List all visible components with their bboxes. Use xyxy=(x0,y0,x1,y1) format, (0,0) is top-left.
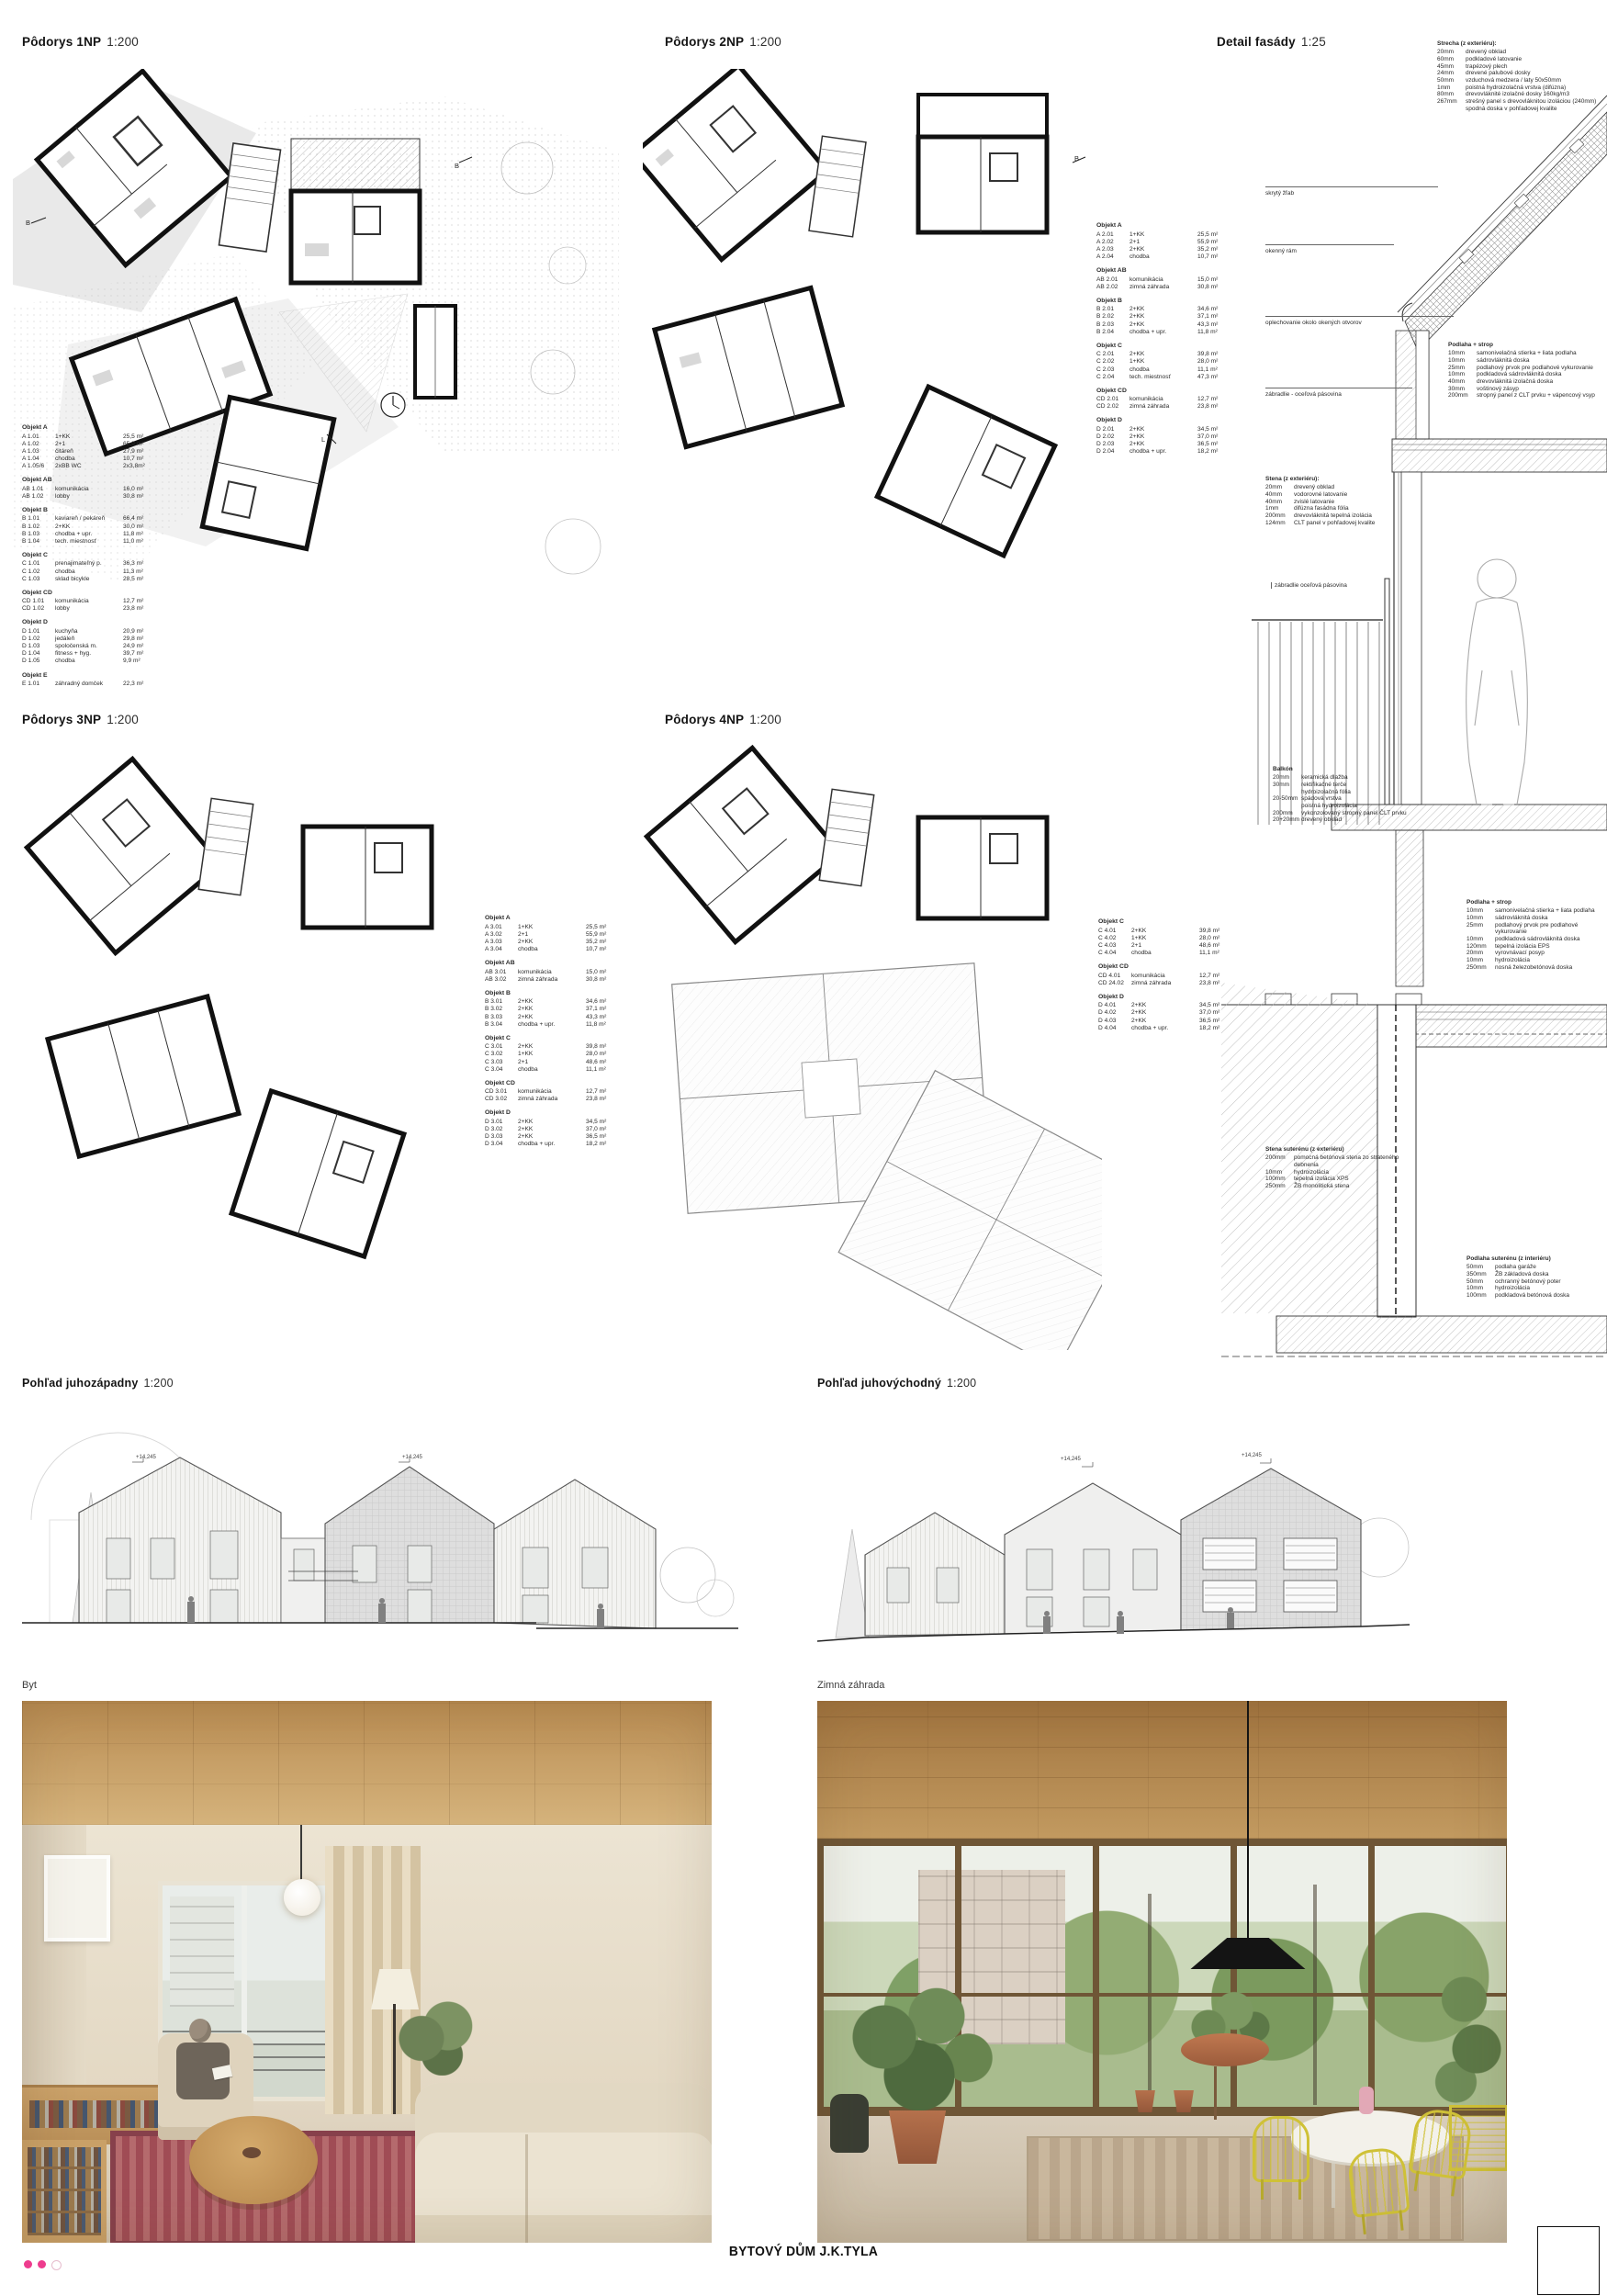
room-name: spoločenská m. xyxy=(55,643,123,650)
legend-row: D 3.012+KK34,5 m² xyxy=(485,1119,636,1126)
room-area: 29,8 m² xyxy=(123,636,143,643)
layer-description: podkladové latovanie xyxy=(1466,56,1604,63)
elev-sw-level-2: +14,245 xyxy=(402,1455,422,1460)
layer-row: 50mmochranný betónový poter xyxy=(1467,1278,1606,1286)
room-code: B 2.02 xyxy=(1096,313,1129,321)
room-name: komunikácia xyxy=(1129,396,1197,403)
plan4-stair-core xyxy=(819,789,873,885)
legend-group-title: Objekt D xyxy=(485,1109,636,1117)
room-area: 23,8 m² xyxy=(123,605,143,613)
room-code: D 1.04 xyxy=(22,650,55,658)
room-code: CD 3.02 xyxy=(485,1096,518,1103)
layer-description: zvislé latovanie xyxy=(1294,499,1420,506)
layer-thickness: 10mm xyxy=(1467,907,1495,915)
room-code: B 3.03 xyxy=(485,1014,518,1021)
layer-description: vyrovnávací posyp xyxy=(1495,950,1606,957)
room-name: 2+KK xyxy=(1131,1018,1199,1025)
layer-row: 20mmdrevený obklad xyxy=(1437,49,1604,56)
layer-row: 200mmstropný panel z CLT prvku + vápenco… xyxy=(1448,392,1606,400)
layer-thickness: 50mm xyxy=(1437,77,1466,84)
legend-row: B 1.04tech. miestnosť11,0 m² xyxy=(22,538,174,546)
legend-group-title: Objekt AB xyxy=(22,477,174,484)
room-code: B 3.01 xyxy=(485,998,518,1006)
human-figure-outline xyxy=(1467,559,1528,805)
layer-block-title: Podlaha suterénu (z interiéru) xyxy=(1467,1255,1606,1263)
layer-row: poistná hydroizolácia xyxy=(1273,803,1422,810)
layer-row: 10mmhydroizolácia xyxy=(1467,957,1606,964)
room-name: zimná záhrada xyxy=(1131,980,1199,987)
legend-row: D 3.04chodba + upr.18,2 m² xyxy=(485,1141,636,1148)
elev-sw-level-1: +14,245 xyxy=(136,1455,156,1460)
layer-row: 124mmCLT panel v pohľadovej kvalite xyxy=(1265,520,1420,527)
room-name: zimná záhrada xyxy=(518,1096,586,1103)
layer-description: vodorovné latovanie xyxy=(1294,491,1420,499)
elevation-se-scale: 1:200 xyxy=(947,1377,976,1390)
room-area: 25,5 m² xyxy=(123,433,143,441)
legend-1np: Objekt AA 1.011+KK25,5 m²A 1.022+165,9 m… xyxy=(22,424,174,694)
room-area: 39,8 m² xyxy=(1197,351,1218,358)
room-area: 11,8 m² xyxy=(586,1021,606,1029)
plan-4np-title: Pôdorys 4NP1:200 xyxy=(665,713,781,726)
room-code: D 3.01 xyxy=(485,1119,518,1126)
layer-thickness: 20mm xyxy=(1467,950,1495,957)
plan-1np-title: Pôdorys 1NP1:200 xyxy=(22,35,139,49)
room-area: 37,0 m² xyxy=(1197,433,1218,441)
plan1-building-e xyxy=(415,306,455,398)
layer-description: hydroizolácia xyxy=(1495,1285,1606,1292)
elevation-sw-scale: 1:200 xyxy=(143,1377,173,1390)
room-name: chodba xyxy=(518,946,586,953)
layer-row: 20+20mmdrevený obklad xyxy=(1273,816,1422,824)
elevation-sw-drawing xyxy=(22,1410,738,1660)
room-area: 48,6 m² xyxy=(586,1059,606,1066)
room-name: 2+1 xyxy=(1129,239,1197,246)
room-name: chodba xyxy=(55,456,123,463)
room-name: chodba xyxy=(1131,950,1199,957)
legend-row: AB 3.01komunikácia15,0 m² xyxy=(485,969,636,976)
legend-group-title: Objekt B xyxy=(485,990,636,997)
legend-group: Objekt AA 3.011+KK25,5 m²A 3.022+155,9 m… xyxy=(485,915,636,953)
legend-group-title: Objekt B xyxy=(22,507,174,514)
room-name: 2+KK xyxy=(1129,313,1197,321)
layer-description: vzduchová medzera / laty 50x50mm xyxy=(1466,77,1604,84)
layer-thickness: 200mm xyxy=(1273,810,1301,817)
room-code: C 3.04 xyxy=(485,1066,518,1074)
detail-block-balkon: Balkón20mmkeramická dlažba30mmrektifikač… xyxy=(1273,766,1422,824)
layer-thickness: 120mm xyxy=(1467,943,1495,951)
room-code: C 1.03 xyxy=(22,576,55,583)
plan3-building-a xyxy=(27,759,220,952)
room-area: 39,8 m² xyxy=(586,1043,606,1051)
room-area: 18,2 m² xyxy=(586,1141,606,1148)
layer-description: hydroizolačná fólia xyxy=(1301,789,1422,796)
layer-thickness: 20-50mm xyxy=(1273,795,1301,803)
room-name: komunikácia xyxy=(1131,973,1199,980)
layer-description: podkladová sádrovláknitá doska xyxy=(1477,371,1606,378)
footer-dot-2 xyxy=(38,2260,46,2268)
room-area: 11,8 m² xyxy=(123,531,143,538)
floor-plan-2np-drawing xyxy=(643,69,1097,675)
room-name: tech. miestnosť xyxy=(1129,374,1197,381)
layer-row: 100mmtepelná izolácia XPS xyxy=(1265,1176,1420,1183)
room-code: C 4.02 xyxy=(1098,935,1131,942)
room-code: A 3.01 xyxy=(485,924,518,931)
legend-row: C 1.02chodba11,3 m² xyxy=(22,568,174,576)
legend-row: E 1.01záhradný domček22,3 m² xyxy=(22,681,174,688)
room-code: A 2.04 xyxy=(1096,253,1129,261)
plan2-building-d xyxy=(877,387,1055,556)
room-code: D 1.01 xyxy=(22,628,55,636)
room-name: chodba + upr. xyxy=(1131,1025,1199,1032)
room-name: 2+KK xyxy=(55,523,123,531)
layer-row: 250mmŽB monolitická stena xyxy=(1265,1183,1420,1190)
room-code: A 3.04 xyxy=(485,946,518,953)
layer-row: 267mmstrešný panel s drevovláknitou izol… xyxy=(1437,98,1604,112)
detail-slab-2 xyxy=(1392,1005,1607,1047)
room-code: A 1.02 xyxy=(22,441,55,448)
layer-description: podkladová sádrovláknitá doska xyxy=(1495,936,1606,943)
layer-row: 50mmpodlaha garáže xyxy=(1467,1264,1606,1271)
layer-description: voštinový zásyp xyxy=(1477,386,1606,393)
room-code: D 4.01 xyxy=(1098,1002,1131,1009)
detail-block-podlaha-strop-2: Podlaha + strop10mmsamonivelačná stierka… xyxy=(1467,899,1606,972)
room-name: 1+KK xyxy=(518,1051,586,1058)
legend-row: D 1.03spoločenská m.24,9 m² xyxy=(22,643,174,650)
plan-3np-scale: 1:200 xyxy=(107,713,139,726)
room-area: 55,9 m² xyxy=(1197,239,1218,246)
room-area: 11,1 m² xyxy=(1199,950,1219,957)
room-area: 12,7 m² xyxy=(586,1088,606,1096)
room-area: 28,0 m² xyxy=(586,1051,606,1058)
callout-oplechovanie: oplechovanie okolo okených otvorov xyxy=(1265,316,1454,326)
room-code: CD 1.02 xyxy=(22,605,55,613)
room-code: AB 2.02 xyxy=(1096,284,1129,291)
room-area: 28,0 m² xyxy=(1197,358,1218,366)
layer-row: 250mmnosná železobetónová doska xyxy=(1467,964,1606,972)
plan3-stair-core xyxy=(198,798,253,895)
room-area: 34,5 m² xyxy=(586,1119,606,1126)
room-name: chodba xyxy=(55,568,123,576)
layer-thickness: 45mm xyxy=(1437,63,1466,71)
room-name: prenajimateľný p. xyxy=(55,560,123,568)
room-area: 39,7 m² xyxy=(123,650,143,658)
room-area: 65,9 m² xyxy=(123,441,143,448)
layer-description: ŽB monolitická stena xyxy=(1294,1183,1420,1190)
room-code: C 2.02 xyxy=(1096,358,1129,366)
layer-row: 10mmsádrovláknitá doska xyxy=(1467,915,1606,922)
room-name: zimná záhrada xyxy=(1129,403,1197,411)
room-code: A 3.03 xyxy=(485,939,518,946)
room-name: chodba + upr. xyxy=(55,531,123,538)
layer-thickness: 50mm xyxy=(1467,1278,1495,1286)
legend-group: Objekt DD 1.01kuchyňa20,9 m²D 1.02jedále… xyxy=(22,619,174,665)
room-code: A 2.02 xyxy=(1096,239,1129,246)
legend-row: D 1.04fitness + hyg.39,7 m² xyxy=(22,650,174,658)
room-name: chodba xyxy=(55,658,123,665)
room-code: C 2.01 xyxy=(1096,351,1129,358)
board-footer-title: BYTOVÝ DŮM J.K.TYLA xyxy=(64,2244,1543,2259)
layer-thickness xyxy=(1273,789,1301,796)
legend-row: C 3.04chodba11,1 m² xyxy=(485,1066,636,1074)
section-marker-b1: B xyxy=(455,162,459,170)
room-name: chodba xyxy=(1129,366,1197,374)
legend-row: AB 3.02zimná záhrada30,8 m² xyxy=(485,976,636,984)
room-area: 15,0 m² xyxy=(586,969,606,976)
legend-group-title: Objekt CD xyxy=(485,1080,636,1087)
room-name: zimná záhrada xyxy=(518,976,586,984)
layer-thickness: 20mm xyxy=(1265,484,1294,491)
layer-description: samonivelačná stierka + liata podlaha xyxy=(1495,907,1606,915)
room-code: B 3.04 xyxy=(485,1021,518,1029)
plan-2np-title: Pôdorys 2NP1:200 xyxy=(665,35,781,49)
room-name: fitness + hyg. xyxy=(55,650,123,658)
room-code: CD 2.02 xyxy=(1096,403,1129,411)
room-area: 10,7 m² xyxy=(123,456,143,463)
legend-row: A 1.03čitáreň27,9 m² xyxy=(22,448,174,456)
layer-thickness: 200mm xyxy=(1265,1154,1294,1168)
room-name: chodba + upr. xyxy=(518,1141,586,1148)
legend-row: B 3.032+KK43,3 m² xyxy=(485,1014,636,1021)
layer-description: spádová vrstva xyxy=(1301,795,1422,803)
detail-block-stena: Stena (z exteriéru):20mmdrevený obklad40… xyxy=(1265,476,1420,526)
detail-lower-wall xyxy=(1396,830,1423,986)
room-code: D 2.01 xyxy=(1096,426,1129,433)
room-area: 23,8 m² xyxy=(1197,403,1218,411)
layer-row: 10mmpodkladová sádrovláknitá doska xyxy=(1467,936,1606,943)
plan2-building-c xyxy=(918,95,1047,232)
room-area: 30,8 m² xyxy=(123,493,143,501)
room-name: 2+KK xyxy=(1129,321,1197,329)
plan3-building-b xyxy=(48,996,239,1156)
room-code: C 1.02 xyxy=(22,568,55,576)
layer-description: ochranný betónový poter xyxy=(1495,1278,1606,1286)
layer-row: 20mmkeramická dlažba xyxy=(1273,774,1422,782)
layer-description: ŽB základová doska xyxy=(1495,1271,1606,1278)
room-code: C 4.04 xyxy=(1098,950,1131,957)
room-area: 11,1 m² xyxy=(586,1066,606,1074)
section-marker-b3: B xyxy=(1074,154,1079,163)
layer-row: 10mmpodkladová sádrovláknitá doska xyxy=(1448,371,1606,378)
layer-thickness: 200mm xyxy=(1448,392,1477,400)
layer-block-title: Strecha (z exteriéru): xyxy=(1437,40,1604,48)
layer-row: 20mmdrevený obklad xyxy=(1265,484,1420,491)
layer-thickness: 20+20mm xyxy=(1273,816,1301,824)
layer-description: pomocná betónová stena zo strateného deb… xyxy=(1294,1154,1420,1168)
legend-group-title: Objekt CD xyxy=(22,590,174,597)
room-area: 11,1 m² xyxy=(1197,366,1218,374)
section-marker-l1: L xyxy=(321,435,325,444)
layer-row: 350mmŽB základová doska xyxy=(1467,1271,1606,1278)
presentation-board: Pôdorys 1NP1:200 Pôdorys 2NP1:200 Detail… xyxy=(0,0,1607,2296)
layer-thickness: 10mm xyxy=(1467,915,1495,922)
clock-north-icon xyxy=(381,393,405,417)
room-code: CD 4.01 xyxy=(1098,973,1131,980)
layer-description: drevený obklad xyxy=(1294,484,1420,491)
layer-row: 20mmvyrovnávací posyp xyxy=(1467,950,1606,957)
plan-4np-scale: 1:200 xyxy=(749,713,781,726)
room-code: C 2.03 xyxy=(1096,366,1129,374)
room-area: 35,2 m² xyxy=(586,939,606,946)
legend-row: A 3.04chodba10,7 m² xyxy=(485,946,636,953)
room-name: 2+KK xyxy=(1129,441,1197,448)
layer-description: hydroizolácia xyxy=(1294,1169,1420,1176)
room-name: 2+KK xyxy=(518,1133,586,1141)
layer-block-title: Podlaha + strop xyxy=(1467,899,1606,906)
plan2-building-a xyxy=(643,69,827,260)
legend-row: D 1.05chodba9,9 m² xyxy=(22,658,174,665)
callout-zabradlie-2: zábradlie oceľová pásovina xyxy=(1271,582,1383,589)
room-area: 25,5 m² xyxy=(1197,231,1218,239)
room-code: D 4.02 xyxy=(1098,1009,1131,1017)
room-area: 36,3 m² xyxy=(123,560,143,568)
layer-description: nosná železobetónová doska xyxy=(1495,964,1606,972)
room-name: 2+KK xyxy=(518,1119,586,1126)
legend-group: Objekt BB 1.01kaviareň / pekáreň66,4 m²B… xyxy=(22,507,174,546)
room-name: 2+1 xyxy=(1131,942,1199,950)
room-area: 37,1 m² xyxy=(1197,313,1218,321)
layer-description: hydroizolácia xyxy=(1495,957,1606,964)
layer-row: 30mmvoštinový zásyp xyxy=(1448,386,1606,393)
legend-row: CD 1.01komunikácia12,7 m² xyxy=(22,598,174,605)
layer-thickness: 10mm xyxy=(1448,350,1477,357)
legend-row: A 1.04chodba10,7 m² xyxy=(22,456,174,463)
plan3-building-c xyxy=(303,827,432,928)
room-code: C 1.01 xyxy=(22,560,55,568)
plan-2np-scale: 1:200 xyxy=(749,35,781,49)
room-area: 15,0 m² xyxy=(1197,276,1218,284)
legend-row: CD 3.01komunikácia12,7 m² xyxy=(485,1088,636,1096)
room-area: 43,3 m² xyxy=(586,1014,606,1021)
room-code: AB 1.01 xyxy=(22,486,55,493)
room-code: C 2.04 xyxy=(1096,374,1129,381)
room-area: 10,7 m² xyxy=(586,946,606,953)
room-name: jedáleň xyxy=(55,636,123,643)
layer-description: drevený obklad xyxy=(1301,816,1422,824)
layer-block-title: Balkón xyxy=(1273,766,1422,773)
room-area: 47,3 m² xyxy=(1197,374,1218,381)
layer-row: 45mmtrapézový plech xyxy=(1437,63,1604,71)
plan4-building-a xyxy=(646,748,840,941)
room-area: 37,0 m² xyxy=(586,1126,606,1133)
layer-row: 40mmzvislé latovanie xyxy=(1265,499,1420,506)
elev-se-level-1: +14,245 xyxy=(1061,1457,1081,1462)
layer-thickness: 350mm xyxy=(1467,1271,1495,1278)
layer-thickness: 10mm xyxy=(1448,371,1477,378)
legend-row: D 1.01kuchyňa20,9 m² xyxy=(22,628,174,636)
legend-row: D 1.02jedáleň29,8 m² xyxy=(22,636,174,643)
room-name: komunikácia xyxy=(1129,276,1197,284)
legend-group: Objekt BB 3.012+KK34,6 m²B 3.022+KK37,1 … xyxy=(485,990,636,1029)
room-code: D 2.04 xyxy=(1096,448,1129,456)
room-code: D 1.02 xyxy=(22,636,55,643)
layer-description: rektifikačné terče xyxy=(1301,782,1422,789)
elevation-se-title: Pohľad juhovýchodný1:200 xyxy=(817,1377,976,1390)
callout-okenny-ram: okenný rám xyxy=(1265,244,1394,254)
room-name: 2+KK xyxy=(1131,1009,1199,1017)
room-name: 1+KK xyxy=(1129,231,1197,239)
room-area: 11,3 m² xyxy=(123,568,143,576)
room-name: 1+KK xyxy=(1131,935,1199,942)
room-name: 2+KK xyxy=(1129,433,1197,441)
room-area: 23,8 m² xyxy=(1199,980,1219,987)
room-name: lobby xyxy=(55,493,123,501)
room-name: zimná záhrada xyxy=(1129,284,1197,291)
room-area: 30,8 m² xyxy=(586,976,606,984)
room-code: E 1.01 xyxy=(22,681,55,688)
room-area: 36,5 m² xyxy=(1199,1018,1219,1025)
layer-description: poistná hydroizolačná vrstva (difúzna) xyxy=(1466,84,1604,92)
room-code: CD 3.01 xyxy=(485,1088,518,1096)
plan-3np-title-text: Pôdorys 3NP xyxy=(22,713,101,726)
room-code: D 3.04 xyxy=(485,1141,518,1148)
room-name: 1+KK xyxy=(518,924,586,931)
photo-vignette xyxy=(22,1701,712,2243)
room-area: 28,5 m² xyxy=(123,576,143,583)
legend-row: B 1.01kaviareň / pekáreň66,4 m² xyxy=(22,515,174,523)
layer-thickness: 40mm xyxy=(1265,499,1294,506)
layer-thickness xyxy=(1273,803,1301,810)
room-area: 39,8 m² xyxy=(1199,928,1219,935)
room-area: 18,2 m² xyxy=(1199,1025,1219,1032)
room-area: 28,0 m² xyxy=(1199,935,1219,942)
layer-row: 200mmpomocná betónová stena zo stratenéh… xyxy=(1265,1154,1420,1168)
render-flat-photo xyxy=(22,1701,712,2243)
room-area: 12,7 m² xyxy=(123,598,143,605)
room-code: C 4.03 xyxy=(1098,942,1131,950)
room-name: 2+KK xyxy=(518,998,586,1006)
layer-thickness: 1mm xyxy=(1437,84,1466,92)
elev-sw-volume-3 xyxy=(494,1480,656,1628)
room-code: A 1.03 xyxy=(22,448,55,456)
room-code: C 4.01 xyxy=(1098,928,1131,935)
room-code: D 4.03 xyxy=(1098,1018,1131,1025)
layer-thickness: 50mm xyxy=(1467,1264,1495,1271)
room-name: chodba + upr. xyxy=(1129,329,1197,336)
legend-group-title: Objekt D xyxy=(22,619,174,626)
layer-thickness: 1mm xyxy=(1265,505,1294,512)
room-code: A 2.01 xyxy=(1096,231,1129,239)
room-name: 2+1 xyxy=(518,931,586,939)
room-area: 16,0 m² xyxy=(123,486,143,493)
layer-row: 20-50mmspádová vrstva xyxy=(1273,795,1422,803)
layer-description: tepelná izolácia XPS xyxy=(1294,1176,1420,1183)
room-area: 20,9 m² xyxy=(123,628,143,636)
detail-roof xyxy=(1398,96,1607,351)
room-area: 34,6 m² xyxy=(586,998,606,1006)
room-code: D 2.03 xyxy=(1096,441,1129,448)
plan2-building-b xyxy=(655,287,842,446)
legend-row: D 3.032+KK36,5 m² xyxy=(485,1133,636,1141)
layer-description: trapézový plech xyxy=(1466,63,1604,71)
layer-row: 1mmpoistná hydroizolačná vrstva (difúzna… xyxy=(1437,84,1604,92)
room-code: B 2.01 xyxy=(1096,306,1129,313)
elevation-sw-title-text: Pohľad juhozápadny xyxy=(22,1377,138,1390)
room-name: 2+KK xyxy=(1129,351,1197,358)
layer-row: 120mmtepelná izolácia EPS xyxy=(1467,943,1606,951)
room-code: D 1.05 xyxy=(22,658,55,665)
room-area: 30,0 m² xyxy=(123,523,143,531)
room-name: 2+KK xyxy=(518,1126,586,1133)
plan-3np-title: Pôdorys 3NP1:200 xyxy=(22,713,139,726)
room-code: CD 2.01 xyxy=(1096,396,1129,403)
room-name: 2+KK xyxy=(1129,426,1197,433)
layer-thickness: 25mm xyxy=(1467,922,1495,936)
layer-row: 50mmvzduchová medzera / laty 50x50mm xyxy=(1437,77,1604,84)
floor-plan-3np-drawing xyxy=(13,735,490,1350)
room-code: D 3.03 xyxy=(485,1133,518,1141)
room-name: 2+KK xyxy=(518,1043,586,1051)
room-name: chodba + upr. xyxy=(1129,448,1197,456)
